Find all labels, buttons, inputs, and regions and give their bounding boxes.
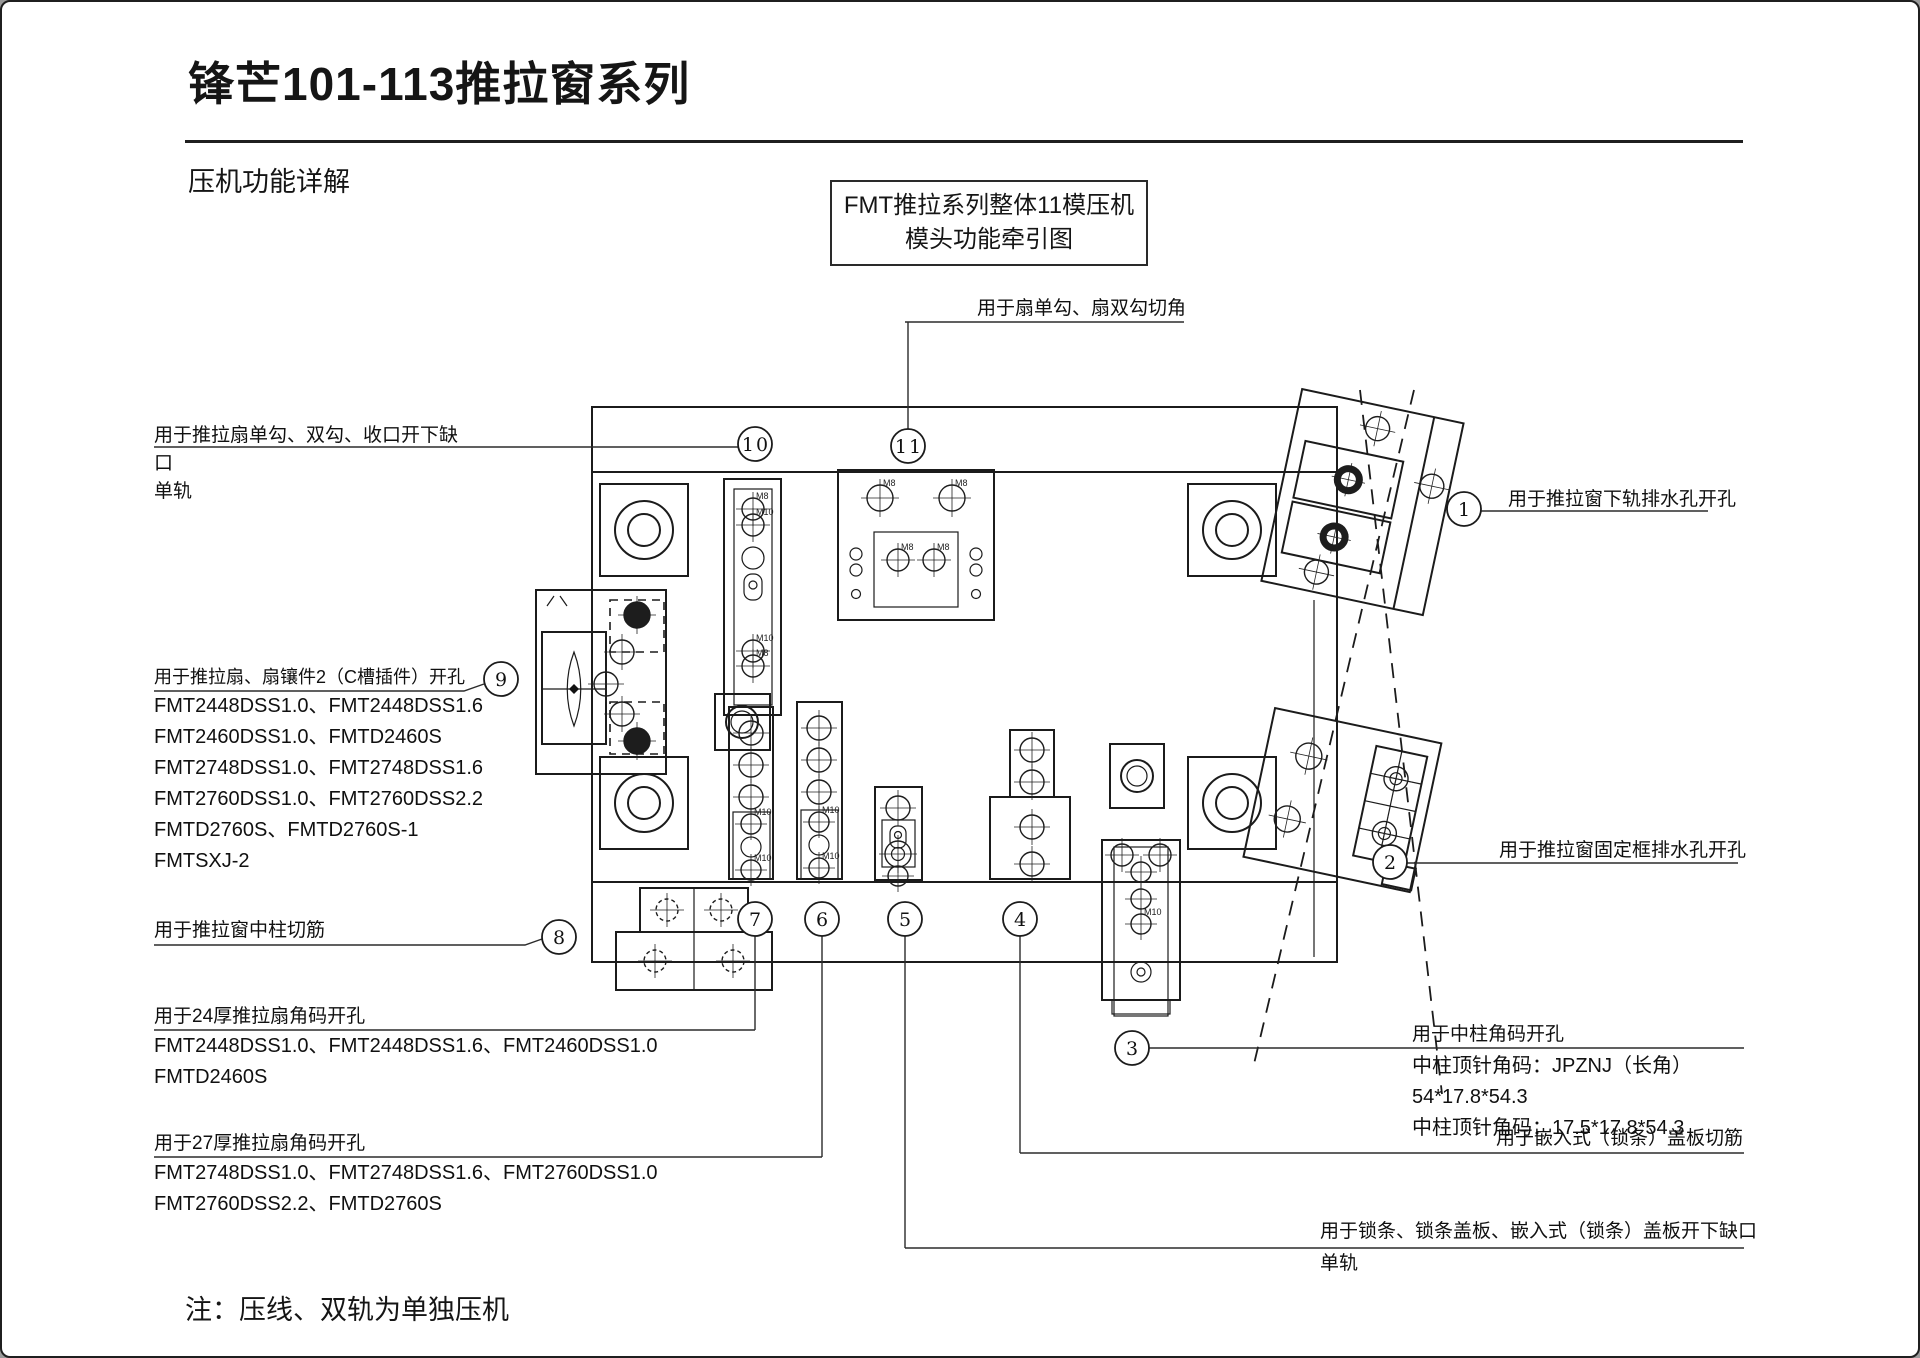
hole-marker: [1105, 838, 1139, 872]
label-mullion-corner-title: 用于中柱角码开孔: [1412, 1022, 1564, 1048]
label-sash-insert-models-5: FMTD2760S、FMTD2760S-1: [154, 817, 419, 843]
hole-marker: M8: [736, 648, 770, 683]
balloon-2: 2: [1373, 845, 1407, 879]
hole-marker: [1314, 517, 1354, 557]
balloon-number: 1: [1458, 499, 1472, 521]
hole-size-label: M10: [822, 851, 840, 861]
hole-marker: M8: [861, 478, 899, 517]
balloon-3: 3: [1115, 1031, 1149, 1065]
hole-marker: [1356, 407, 1399, 450]
hole-marker: [1014, 846, 1050, 882]
footnote: 注：压线、双轨为单独压机: [185, 1288, 509, 1327]
hole-marker: M8: [881, 542, 915, 577]
hole-marker: M8: [917, 542, 951, 577]
balloon-number: 7: [749, 909, 763, 931]
balloon-7: 7: [738, 902, 772, 936]
hole-size-label: M10: [822, 805, 840, 815]
hole-marker: M8: [933, 478, 971, 517]
label-sash-insert-title: 用于推拉扇、扇镶件2（C槽插件）开孔: [154, 664, 465, 690]
label-sash-insert-models-4: FMT2760DSS1.0、FMT2760DSS2.2: [154, 786, 483, 812]
hole-size-label: M8: [937, 542, 950, 552]
label-sash-notch-3: 单轨: [154, 479, 192, 505]
hole-marker: [801, 710, 837, 746]
label-corner27-models-2: FMT2760DSS2.2、FMTD2760S: [154, 1191, 442, 1217]
balloon-number: 5: [899, 909, 913, 931]
hole-marker: [716, 944, 750, 978]
hole-marker: [638, 944, 672, 978]
label-mullion-corner-1: 中柱顶针角码：JPZNJ（长角）: [1412, 1053, 1692, 1079]
label-corner27-models-1: FMT2748DSS1.0、FMT2748DSS1.6、FMT2760DSS1.…: [154, 1160, 658, 1186]
hole-size-label: M8: [883, 478, 896, 488]
label-corner27-title: 用于27厚推拉扇角码开孔: [154, 1131, 365, 1157]
balloon-8: 8: [542, 920, 576, 954]
hole-size-label: M8: [955, 478, 968, 488]
label-corner24-models-2: FMTD2460S: [154, 1064, 267, 1090]
label-lock-strip-2: 单轨: [1320, 1251, 1358, 1277]
label-mullion-rib-cut: 用于推拉窗中柱切筋: [154, 918, 325, 944]
hole-marker: [1143, 838, 1177, 872]
balloon-number: 10: [742, 434, 770, 456]
label-lock-strip-1: 用于锁条、锁条盖板、嵌入式（锁条）盖板开下缺口: [1320, 1219, 1757, 1245]
balloon-number: 9: [495, 669, 509, 691]
balloon-10: 10: [738, 427, 772, 461]
hole-markers-layer: M8M10M10M8M8M8M8M8M10M10M10M10M10: [588, 478, 1177, 978]
balloon-number: 3: [1126, 1038, 1140, 1060]
hole-marker: [801, 742, 837, 778]
balloon-9: 9: [484, 662, 518, 696]
label-mullion-corner-2: 54*17.8*54.3: [1412, 1084, 1528, 1110]
balloon-number: 6: [816, 909, 830, 931]
hole-size-label: M8: [901, 542, 914, 552]
hole-size-label: M10: [754, 853, 772, 863]
balloon-number: 8: [553, 927, 567, 949]
hole-marker: [1286, 734, 1331, 779]
hole-marker: [1265, 796, 1310, 841]
hole-size-label: M8: [756, 491, 769, 501]
guide-post-blocks: [600, 484, 1276, 849]
hole-size-label: M10: [754, 807, 772, 817]
label-sash-insert-models-3: FMT2748DSS1.0、FMT2748DSS1.6: [154, 755, 483, 781]
hole-size-label: M10: [756, 507, 774, 517]
label-sash-notch-2: 口: [154, 451, 173, 477]
balloon-5: 5: [888, 902, 922, 936]
hole-marker: [882, 860, 914, 892]
hole-marker: [618, 596, 656, 634]
label-fan-corner-cut: 用于扇单勾、扇双勾切角: [977, 296, 1186, 322]
hole-marker: [588, 666, 624, 702]
hole-size-label: M10: [756, 633, 774, 643]
label-sash-insert-models-6: FMTSXJ-2: [154, 848, 250, 874]
hole-marker: M10: [736, 507, 774, 542]
balloon-6: 6: [805, 902, 839, 936]
balloon-number: 2: [1384, 852, 1398, 874]
die-4: [990, 730, 1070, 879]
hole-marker: [1014, 809, 1050, 845]
balloon-11: 11: [891, 429, 925, 463]
center-right-block: [1110, 744, 1164, 808]
hole-size-label: M8: [756, 648, 769, 658]
label-corner24-models-1: FMT2448DSS1.0、FMT2448DSS1.6、FMT2460DSS1.…: [154, 1033, 658, 1059]
balloon-4: 4: [1003, 902, 1037, 936]
hole-marker: M10: [1125, 907, 1162, 940]
construction-dashed-lines: [1254, 390, 1442, 1094]
drawing-sheet: 锋芒101-113推拉窗系列 压机功能详解 FMT推拉系列整体11模压机 模头功…: [0, 0, 1920, 1358]
tilted-die-2: [1243, 708, 1442, 892]
label-fixed-frame-drain: 用于推拉窗固定框排水孔开孔: [1499, 838, 1746, 864]
label-sash-insert-models-1: FMT2448DSS1.0、FMT2448DSS1.6: [154, 693, 483, 719]
label-cover-rib-cut: 用于嵌入式（锁条）盖板切筋: [1496, 1126, 1743, 1152]
balloon-number: 4: [1014, 909, 1028, 931]
label-corner24-title: 用于24厚推拉扇角码开孔: [154, 1004, 365, 1030]
label-sash-insert-models-2: FMT2460DSS1.0、FMTD2460S: [154, 724, 442, 750]
hole-marker: [1014, 764, 1050, 800]
hole-marker: [650, 893, 684, 927]
tilted-die-1: [1261, 389, 1463, 615]
hole-marker: [733, 715, 769, 751]
hole-marker: [1014, 732, 1050, 768]
label-sash-notch-1: 用于推拉扇单勾、双勾、收口开下缺: [154, 423, 458, 449]
die-11: [838, 470, 994, 620]
hole-marker: [1375, 757, 1418, 800]
press-body-outline: [592, 407, 1337, 962]
hole-marker: [1328, 460, 1368, 500]
hole-size-label: M10: [1144, 907, 1162, 917]
balloon-1: 1: [1447, 492, 1481, 526]
hole-marker: [733, 747, 769, 783]
balloon-number: 11: [895, 436, 923, 458]
hole-marker: [704, 893, 738, 927]
label-lower-rail-drain: 用于推拉窗下轨排水孔开孔: [1508, 487, 1736, 513]
